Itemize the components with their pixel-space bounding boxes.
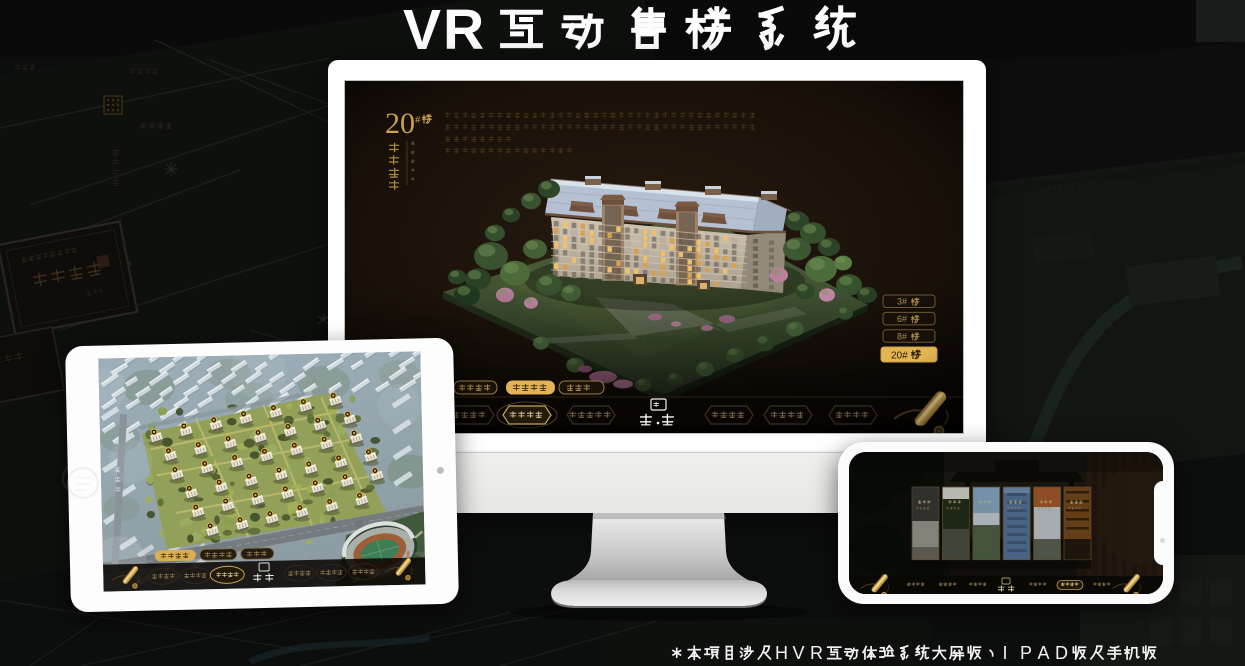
svg-text:P: P [1020,643,1032,663]
svg-text:H: H [775,643,788,663]
svg-text:R: R [810,643,823,663]
svg-text:I: I [1003,643,1008,663]
svg-text:VR: VR [403,0,486,60]
svg-text:A: A [1038,643,1050,663]
svg-text:V: V [793,643,805,663]
svg-text:D: D [1055,643,1068,663]
